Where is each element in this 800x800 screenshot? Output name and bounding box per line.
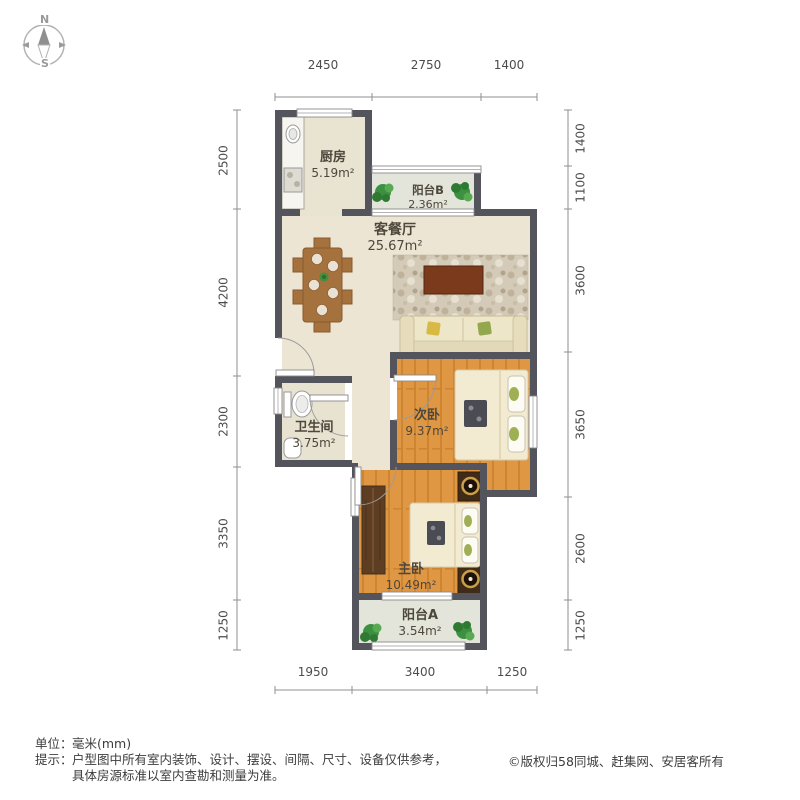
tv-icon — [424, 266, 483, 294]
tip-text-line2: 具体房源标准以室内查勘和测量为准。 — [72, 765, 285, 784]
entry-door-icon — [276, 370, 314, 376]
tv-wall-icon — [393, 255, 528, 320]
compass-south-label: S — [40, 58, 50, 69]
toilet-icon — [284, 391, 312, 417]
bathroom-door-icon — [310, 395, 348, 401]
sofa-icon — [400, 316, 527, 356]
master-door-icon — [355, 467, 361, 505]
bathroom-sink-icon — [284, 438, 301, 458]
kitchen-counter-icon — [282, 117, 304, 209]
corridor-floor — [352, 376, 390, 470]
tip-label: 提示： — [35, 749, 73, 768]
wardrobe-icon — [362, 486, 385, 574]
floorplan-page: N S 厨房 5.19m² 阳台B 2.36m² 客餐厅 25.67m² 卫生间… — [0, 0, 800, 800]
bedroom2-door-icon — [394, 375, 436, 381]
bedroom2-floor-2 — [487, 463, 530, 490]
floorplan-drawing — [0, 0, 800, 800]
compass-north-label: N — [39, 14, 50, 25]
copyright-text: ©版权归58同城、赶集网、安居客所有 — [508, 751, 724, 770]
bedroom2-bed-icon — [455, 370, 528, 460]
